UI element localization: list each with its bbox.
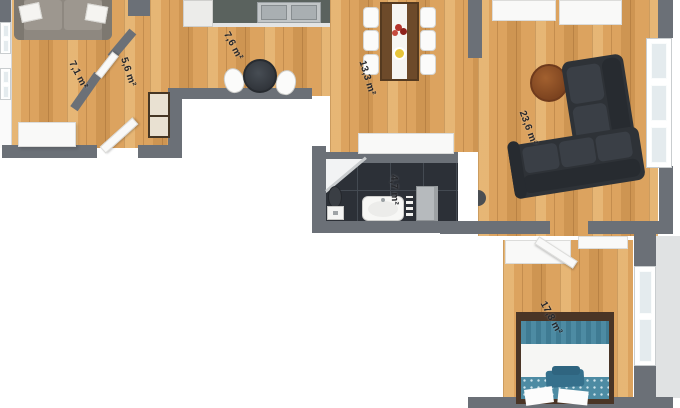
- window-living-right: [646, 38, 672, 168]
- window-lounge-2: [0, 68, 11, 100]
- sectional-sofa: [496, 52, 647, 201]
- wall-bedroom-right-bottom: [634, 366, 656, 398]
- double-sink: [257, 2, 321, 23]
- window-bedroom-right: [634, 266, 656, 366]
- window-lounge-1: [0, 22, 11, 54]
- sideboard: [358, 133, 454, 154]
- dining-chair: [363, 30, 379, 51]
- double-bed: [516, 312, 614, 404]
- flower-vase: [392, 24, 408, 38]
- sheet-fold: [557, 388, 588, 405]
- bathroom-cabinet: [416, 186, 438, 221]
- sofa: [14, 0, 112, 40]
- window-sill-top-1: [492, 0, 556, 21]
- wall-bathroom-bottom: [312, 221, 460, 233]
- sofa-pillow-right: [85, 3, 109, 23]
- desk: [18, 122, 76, 147]
- wall-right-mid: [659, 166, 673, 234]
- dining-chair: [363, 7, 379, 28]
- dining-chair: [420, 30, 436, 51]
- wall-bedroom-right-top: [634, 234, 656, 266]
- dining-table: [380, 2, 419, 81]
- bistro-table: [243, 59, 277, 93]
- dining-chair: [420, 7, 436, 28]
- shelf: [578, 236, 628, 249]
- plate: [393, 47, 406, 60]
- wall-hall-top: [128, 0, 150, 16]
- wall-top-left-corner: [0, 0, 11, 24]
- bed-pillow: [552, 366, 580, 375]
- exterior-ground: [656, 236, 680, 398]
- room-label-bathroom: 4,7 m²: [388, 175, 400, 205]
- bed-headboard: [521, 321, 609, 344]
- wall-living-bedroom-left: [440, 221, 550, 234]
- wall-dining-living-divider: [468, 0, 482, 58]
- floor-plan-canvas: 7,1 m² 5,6 m² 7,6 m² 13,3 m² 4,7 m² 23,6…: [0, 0, 680, 408]
- kitchen-cabinet: [183, 0, 213, 27]
- wall-top-right-corner: [658, 0, 673, 38]
- toilet: [327, 186, 344, 220]
- dining-chair: [420, 54, 436, 75]
- towel-rail: [406, 196, 413, 216]
- window-sill-top-2: [559, 0, 622, 25]
- hall-cabinet: [148, 92, 170, 138]
